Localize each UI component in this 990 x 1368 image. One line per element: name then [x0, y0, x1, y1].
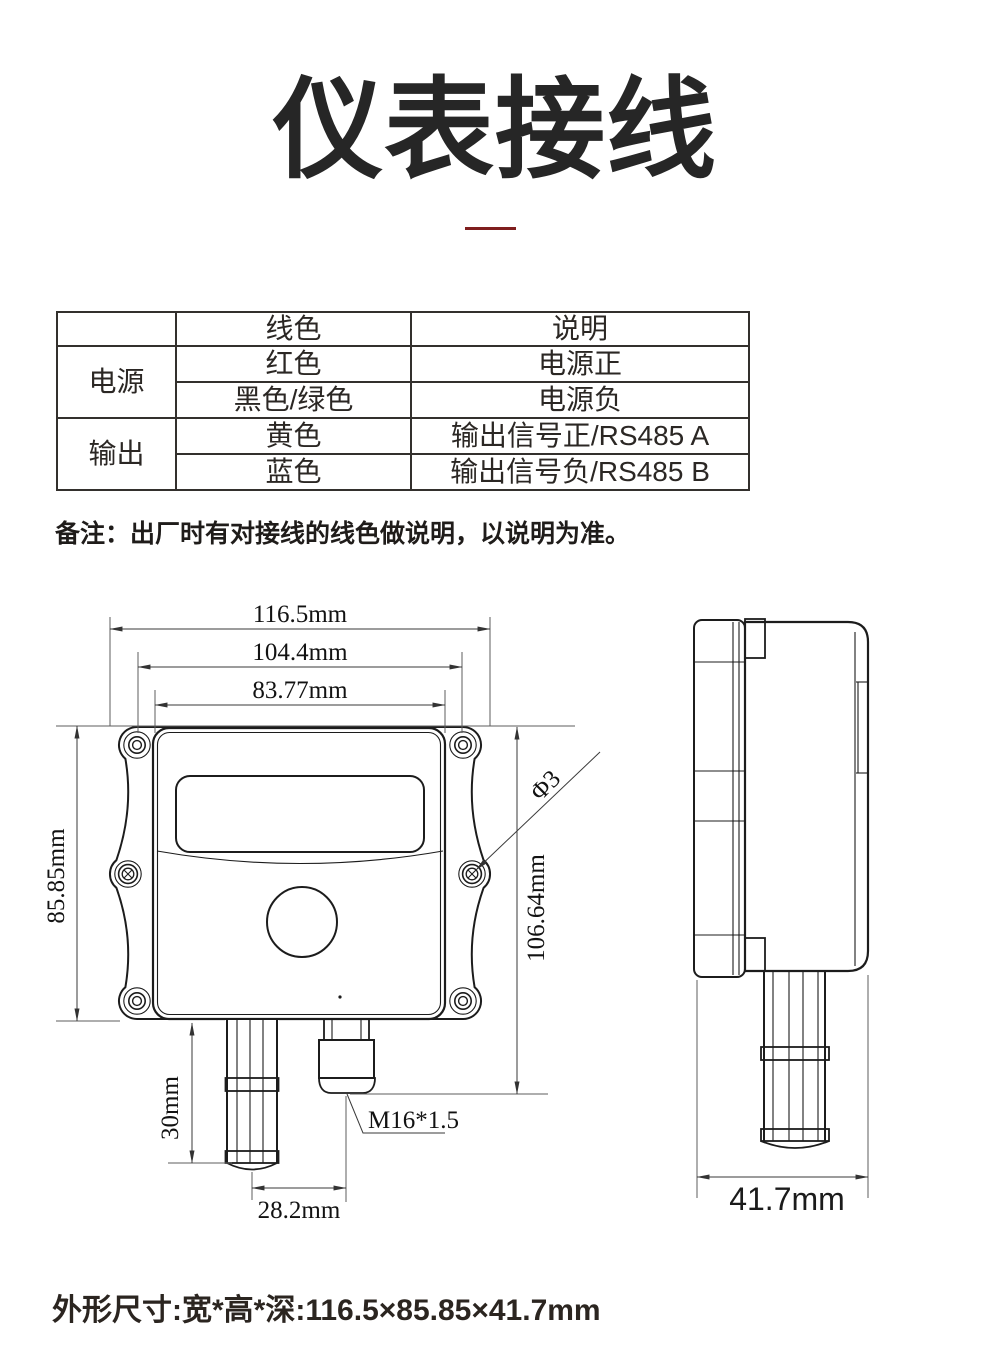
body-cover-inner [158, 733, 441, 1015]
corner-screws [129, 737, 471, 1009]
header-corner-cell [57, 312, 176, 346]
wire-color-cell: 红色 [176, 346, 411, 382]
dim-hole-dia-label: Φ3 [525, 765, 566, 806]
wire-desc-cell: 电源正 [411, 346, 749, 382]
dim-height-body-label: 85.85mm [43, 828, 70, 924]
dim-gland-thread-label: M16*1.5 [368, 1107, 459, 1134]
body-profile [745, 622, 868, 971]
ear-ring [450, 988, 476, 1014]
title-underline-accent [465, 227, 516, 230]
dim-width-outer-label: 116.5mm [253, 601, 348, 628]
group-label-output: 输出 [57, 418, 176, 490]
dimension-drawing: 116.5mm 104.4mm 83.77mm 85.85mm 106.64mm… [0, 580, 990, 1280]
mounting-holes [119, 865, 482, 884]
wire-desc-cell: 输出信号负/RS485 B [411, 454, 749, 490]
dim-width-inner-label: 83.77mm [252, 677, 348, 704]
wire-desc-cell: 输出信号正/RS485 A [411, 418, 749, 454]
hinge-tab-top [745, 619, 765, 658]
dim-depth-label: 41.7mm [729, 1181, 845, 1217]
mount-plate [694, 620, 745, 977]
page: 仪表接线 线色 说明 电源 红色 电源正 黑色/绿色 电源负 输出 黄色 输出信… [0, 0, 990, 1368]
ear-ring [124, 732, 150, 758]
wire-desc-cell: 电源负 [411, 382, 749, 418]
note-text: 备注：出厂时有对接线的线色做说明，以说明为准。 [55, 514, 630, 550]
sensor-opening [267, 887, 337, 957]
dim-probe-length-label: 30mm [157, 1076, 184, 1140]
table-header-row: 线色 说明 [57, 312, 749, 346]
wire-color-cell: 蓝色 [176, 454, 411, 490]
page-title: 仪表接线 [0, 74, 990, 188]
dim-height-total-label: 106.64mm [523, 854, 550, 962]
hinge-tab-bottom [745, 938, 765, 971]
group-label-power: 电源 [57, 346, 176, 418]
wire-color-cell: 黄色 [176, 418, 411, 454]
table-row: 输出 黄色 输出信号正/RS485 A [57, 418, 749, 454]
probe-front [225, 1019, 279, 1170]
body-cover [153, 728, 445, 1019]
enclosure-outline [110, 727, 490, 1019]
mold-dot [338, 995, 341, 998]
overall-dimensions-text: 外形尺寸:宽*高*深:116.5×85.85×41.7mm [52, 1285, 601, 1329]
table-row: 电源 红色 电源正 [57, 346, 749, 382]
dim-probe-offset-label: 28.2mm [258, 1197, 341, 1224]
display-window [176, 776, 424, 852]
ear-ring [124, 988, 150, 1014]
side-view [694, 619, 868, 1148]
dim-width-mount-label: 104.4mm [252, 639, 348, 666]
probe-side [761, 971, 829, 1148]
side-slot [856, 682, 868, 773]
wiring-table: 线色 说明 电源 红色 电源正 黑色/绿色 电源负 输出 黄色 输出信号正/RS… [56, 311, 750, 491]
header-wire-color: 线色 [176, 312, 411, 346]
front-view-dimensions: 116.5mm 104.4mm 83.77mm 85.85mm 106.64mm… [43, 601, 600, 1224]
header-description: 说明 [411, 312, 749, 346]
cable-gland [319, 1019, 375, 1093]
ear-ring [450, 732, 476, 758]
wire-color-cell: 黑色/绿色 [176, 382, 411, 418]
